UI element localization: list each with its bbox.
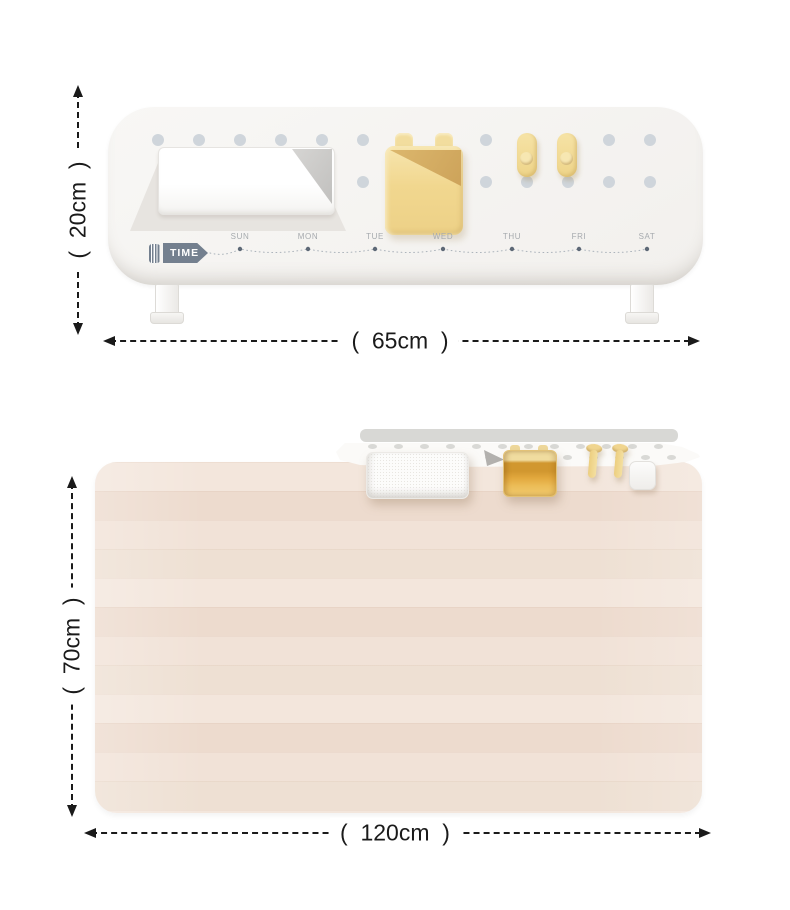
pegboard-hole <box>480 176 492 188</box>
pegboard-hole <box>641 455 650 460</box>
product-dimension-diagram: ( 20cm ) TIME <box>0 0 790 910</box>
arrow-up-icon <box>67 476 77 488</box>
pegboard-hole <box>472 444 481 449</box>
pegboard-hole <box>562 176 574 188</box>
peg-hook <box>557 133 577 177</box>
desk-clamp <box>629 461 656 490</box>
width-dimension-label: ( 65cm ) <box>341 326 458 357</box>
pegboard-hole <box>550 444 559 449</box>
day-label-fri: FRI <box>557 232 601 241</box>
arrow-right-icon <box>688 336 700 346</box>
day-label-thu: THU <box>490 232 534 241</box>
hook-stem <box>614 450 624 479</box>
timeline-dots <box>238 247 649 251</box>
day-label-tue: TUE <box>353 232 397 241</box>
pegboard-hole <box>563 455 572 460</box>
yellow-cup-top-view <box>503 450 557 497</box>
arrow-left-icon <box>103 336 115 346</box>
timeline-dotted-curve <box>210 249 647 254</box>
pegboard-top-back-edge <box>360 429 678 442</box>
desk-surface <box>95 462 702 813</box>
panel-leg-base <box>625 312 659 324</box>
pegboard-hole <box>368 444 377 449</box>
day-label-sat: SAT <box>625 232 669 241</box>
peg-hook-top-view <box>609 443 630 480</box>
pegboard-hole <box>193 134 205 146</box>
arrow-right-icon <box>699 828 711 838</box>
arrow-left-icon <box>84 828 96 838</box>
pegboard-hole <box>357 176 369 188</box>
peg-hook-knob <box>520 152 533 165</box>
pegboard-hole <box>644 134 656 146</box>
pegboard-hole <box>394 444 403 449</box>
pegboard-hole <box>420 444 429 449</box>
pegboard-hole <box>603 134 615 146</box>
peg-hook <box>517 133 537 177</box>
pegboard-hole <box>603 176 615 188</box>
day-label-wed: WED <box>421 232 465 241</box>
pegboard-hole <box>234 134 246 146</box>
panel-leg-base <box>150 312 184 324</box>
day-label-sun: SUN <box>218 232 262 241</box>
time-badge-bars-icon <box>149 244 160 263</box>
pegboard-hole <box>654 444 663 449</box>
pegboard-hole <box>521 176 533 188</box>
pegboard-hole <box>316 134 328 146</box>
pegboard-hole <box>152 134 164 146</box>
pegboard-hole <box>524 444 533 449</box>
height-dimension-label: ( 20cm ) <box>63 151 94 268</box>
pegboard-hole <box>275 134 287 146</box>
arrow-down-icon <box>73 323 83 335</box>
hook-stem <box>588 450 598 479</box>
desk-width-dimension-label: ( 120cm ) <box>330 818 460 849</box>
arrow-up-icon <box>73 85 83 97</box>
white-shelf-top-view <box>366 452 469 499</box>
pegboard-hole <box>446 444 455 449</box>
pegboard-hole <box>357 134 369 146</box>
day-label-mon: MON <box>286 232 330 241</box>
pegboard-hole <box>498 444 507 449</box>
pegboard-hole <box>644 176 656 188</box>
pegboard-hole <box>576 444 585 449</box>
pegboard-hole <box>480 134 492 146</box>
peg-hook-top-view <box>583 443 604 480</box>
peg-hook-knob <box>560 152 573 165</box>
depth-dimension-label: ( 70cm ) <box>57 587 88 704</box>
arrow-down-icon <box>67 805 77 817</box>
pegboard-hole <box>667 455 676 460</box>
